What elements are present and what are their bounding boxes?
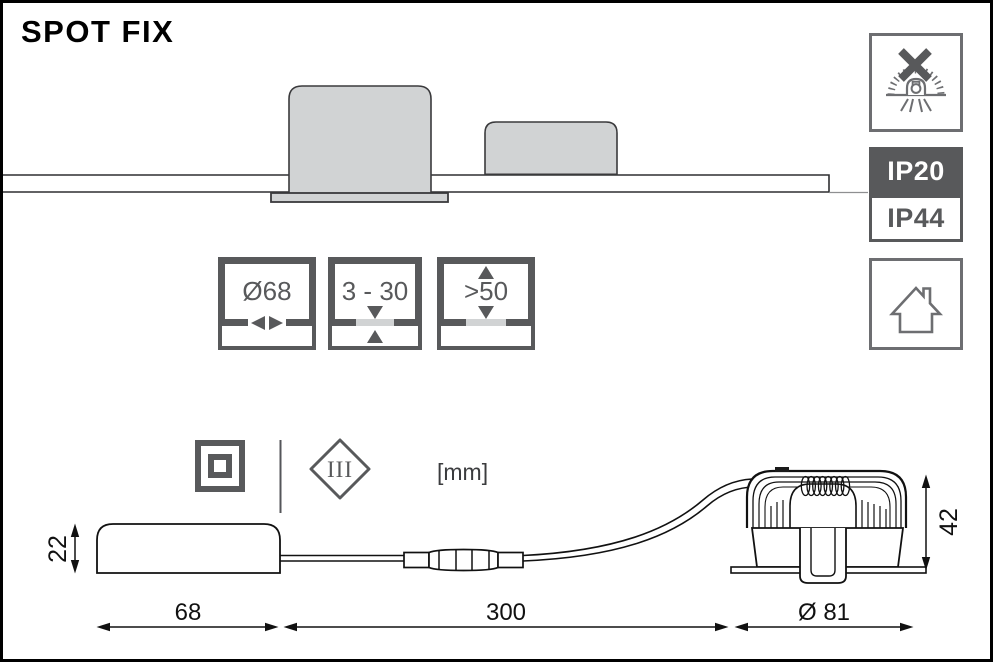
cable-left (280, 556, 404, 562)
datasheet-page: 22 42 68 300 (0, 0, 1000, 668)
dim-label-42: 42 (935, 508, 963, 536)
driver-unit-outline (97, 524, 280, 573)
dim-label-300: 300 (486, 599, 526, 626)
dim-driver-length: 68 (97, 599, 279, 631)
cable-right (523, 479, 755, 561)
units-label: [mm] (437, 459, 488, 486)
ip44-label: IP44 (887, 203, 945, 234)
ip20-badge: IP20 (869, 147, 963, 195)
dim-spot-height: 42 (922, 475, 963, 571)
page-title: SPOT FIX (21, 14, 174, 50)
dim-label-dia81: Ø 81 (798, 599, 850, 626)
arrow-right-icon (269, 316, 283, 330)
inner-square (208, 454, 232, 478)
dim-label-68: 68 (175, 599, 202, 626)
protection-class-3-icon: III (308, 437, 372, 501)
dim-spot-diameter: Ø 81 (735, 599, 914, 631)
arrow-up-icon (478, 266, 494, 279)
ip20-label: IP20 (887, 156, 945, 187)
house-icon (884, 272, 948, 336)
dim-label-22: 22 (44, 535, 72, 563)
center-arch (790, 484, 856, 528)
connector (404, 550, 523, 571)
arrow-down-icon (478, 306, 494, 319)
ceiling-panel-pictogram (218, 326, 316, 350)
spec-box-cutout-diameter: Ø68 (218, 257, 316, 350)
ceiling-cross-section (3, 86, 868, 202)
recessed-housing-shape (289, 86, 431, 194)
protection-class-2-icon (195, 440, 245, 492)
dim-cable-length: 300 (284, 599, 729, 631)
no-insulation-cover-box (869, 33, 963, 132)
cutout-diameter-label: Ø68 (218, 264, 316, 319)
trim-flange-shape (271, 193, 448, 202)
arrow-down-icon (367, 306, 383, 319)
ip44-badge: IP44 (869, 195, 963, 242)
class-3-label: III (327, 457, 353, 482)
arrow-up-icon (367, 330, 383, 343)
spotlight-drawing (731, 467, 926, 583)
surface-driver-box-shape (485, 122, 617, 174)
no-insulation-cover-icon (878, 43, 954, 123)
heatsink-tab (775, 467, 789, 472)
indoor-use-box (869, 258, 963, 350)
spring-clip (800, 528, 846, 583)
spec-box-ceiling-thickness: 3 - 30 (328, 257, 422, 350)
arrow-left-icon (251, 316, 265, 330)
ceiling-panel-pictogram (437, 326, 535, 350)
spec-box-min-clearance: >50 (437, 257, 535, 350)
dim-driver-height: 22 (44, 524, 79, 574)
